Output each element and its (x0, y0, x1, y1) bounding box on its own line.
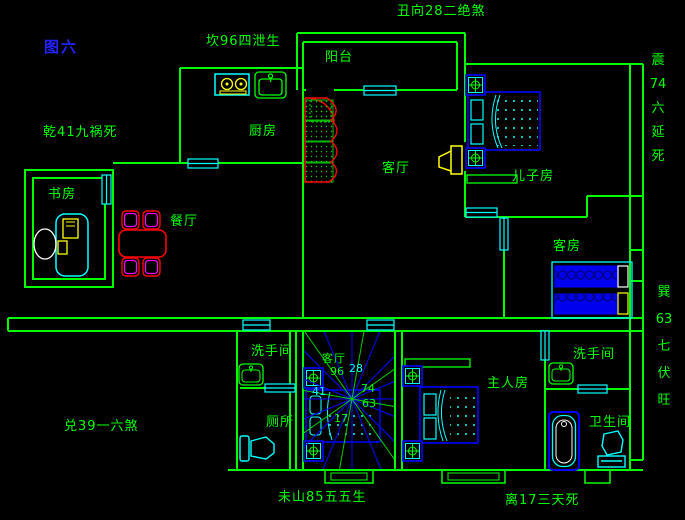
fengshui-east-char: 74 (650, 78, 667, 92)
label-stair-hall: 客厅 (322, 352, 346, 366)
compass-number-e: 74 (361, 383, 375, 394)
washroom-right-sink (549, 363, 573, 384)
fengshui-southeast-char: 63 (656, 313, 673, 327)
tv (439, 146, 462, 174)
figure-label: 图六 (44, 36, 78, 57)
compass-number-ne: 28 (349, 363, 363, 374)
label-balcony: 阳台 (325, 51, 353, 65)
fengshui-southeast-char: 旺 (657, 394, 670, 408)
window-guest-hall (500, 218, 508, 250)
window-kitchen (188, 159, 218, 168)
label-dining: 餐厅 (170, 215, 198, 229)
fengshui-southeast-char: 巽 (657, 286, 670, 300)
fengshui-southeast-char: 七 (657, 340, 670, 354)
compass-number-w: 41 (312, 386, 326, 397)
window-corridor-mid (367, 320, 394, 330)
study-desk (34, 214, 88, 276)
label-bathroom: 卫生间 (589, 416, 631, 430)
window-divider-left (265, 384, 295, 392)
fengshui-west: 兑39一六煞 (64, 420, 139, 434)
sofa (305, 98, 337, 182)
toilet-left (240, 436, 274, 461)
compass-number-s: 17 (334, 413, 348, 424)
fengshui-northeast: 丑向28二绝煞 (397, 5, 486, 19)
label-washroom-right: 洗手间 (573, 348, 615, 362)
label-kitchen: 厨房 (249, 125, 277, 139)
fengshui-east-char: 六 (651, 102, 664, 116)
guest-beds (552, 262, 632, 318)
nightstand (466, 75, 485, 95)
fengshui-east-char: 延 (651, 126, 664, 140)
compass-number-se: 63 (362, 398, 376, 409)
floorplan-drawing (0, 0, 685, 520)
window-living-entry (364, 86, 396, 95)
label-toilet: 厕所 (266, 416, 294, 430)
window-corridor-left (243, 320, 270, 330)
fengshui-east: 震 74 六 延 死 (646, 54, 670, 164)
label-sons-room: 儿子房 (512, 170, 554, 184)
label-study: 书房 (48, 188, 76, 202)
toilet-right (598, 431, 625, 467)
sons-room-shelf (467, 175, 517, 183)
label-living: 客厅 (382, 162, 410, 176)
fengshui-southwest: 未山85五五生 (278, 491, 367, 505)
fengshui-south: 离17三天死 (505, 494, 580, 508)
window-sons-room (466, 208, 497, 217)
cad-floorplan-viewport[interactable]: 图六 坎96四泄生 丑向28二绝煞 乾41九祸死 兑39一六煞 未山85五五生 … (0, 0, 685, 520)
label-guest-room: 客房 (553, 240, 581, 254)
compass-rays (192, 239, 512, 520)
blue-rays (192, 239, 512, 520)
sons-bed (468, 92, 540, 150)
window-study (102, 175, 111, 204)
fengshui-southeast-char: 伏 (657, 367, 670, 381)
compass-number-nw: 96 (330, 366, 344, 377)
master-bed (420, 387, 478, 443)
label-washroom-left: 洗手间 (251, 345, 293, 359)
stove (215, 74, 249, 95)
window-washroom-right (541, 331, 549, 360)
headboard (618, 266, 628, 287)
kitchen-sink (255, 72, 286, 98)
fengshui-southeast: 巽 63 七 伏 旺 (652, 286, 676, 408)
dining-set (119, 211, 166, 276)
nightstand (466, 148, 485, 168)
dining-table (119, 230, 166, 257)
fengshui-east-char: 震 (651, 54, 664, 68)
washroom-left-sink (239, 364, 263, 385)
label-master-room: 主人房 (487, 377, 529, 391)
fengshui-east-char: 死 (651, 150, 664, 164)
nightstand (403, 366, 422, 386)
nightstand (403, 441, 422, 461)
desk-chair (34, 229, 56, 259)
desk-device (58, 241, 67, 254)
fengshui-northwest: 乾41九祸死 (43, 126, 118, 140)
headboard (618, 293, 628, 314)
window-divider-right (578, 385, 607, 393)
fengshui-north: 坎96四泄生 (206, 35, 281, 49)
bathtub (549, 412, 579, 470)
